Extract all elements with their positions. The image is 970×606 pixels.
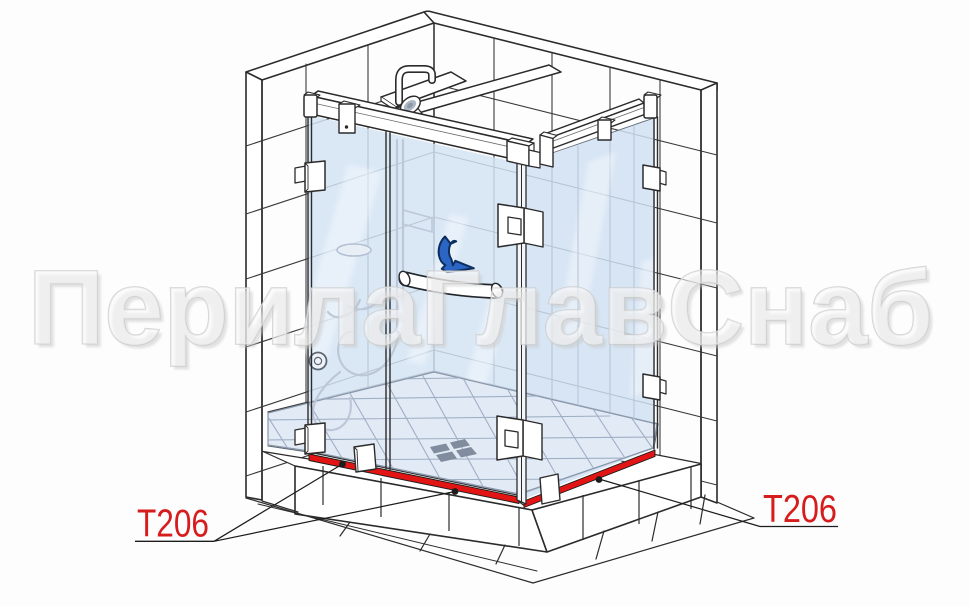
svg-text:T206: T206 xyxy=(763,488,837,531)
svg-text:T206: T206 xyxy=(137,503,209,546)
svg-text:ПерилаГлавСнаб: ПерилаГлавСнаб xyxy=(28,249,933,367)
